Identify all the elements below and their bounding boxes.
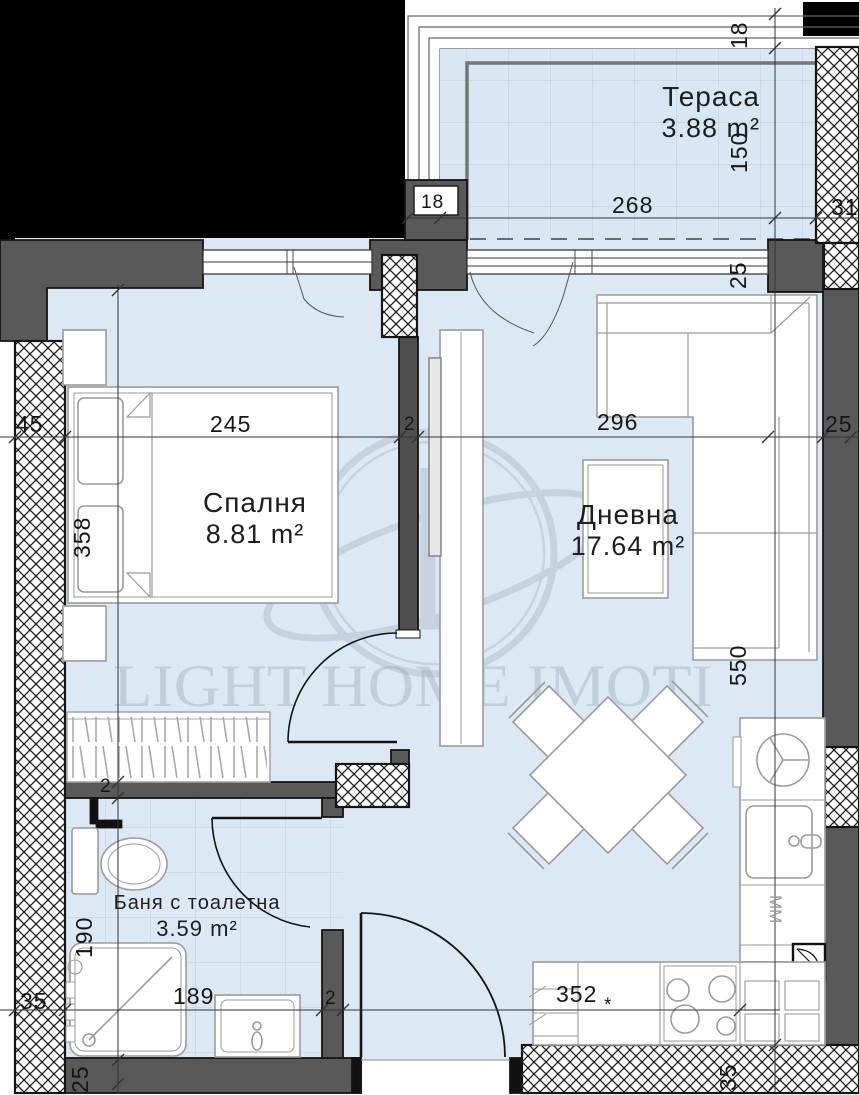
dim-bedroom-width: 245 [210, 411, 251, 438]
watermark-text: LIGHT HOME IMOTI [113, 653, 713, 719]
hatched-wall-left [15, 341, 65, 1093]
dim-partition-a: 2 [404, 414, 416, 436]
terrace-name: Тераса [590, 80, 760, 113]
dim-bathroom-depth: 190 [71, 917, 98, 958]
dim-terrace-width: 268 [612, 192, 653, 219]
dim-terrace-wall-top: 18 [726, 21, 753, 49]
dim-left-wall: 45 [16, 411, 44, 438]
nightstand [63, 330, 106, 385]
nightstand [63, 606, 106, 661]
floor-plan-page: LIGHT HOME IMOTI [0, 0, 859, 1095]
living-room-window [467, 250, 768, 274]
hatched-wall-bottom [522, 1045, 859, 1093]
dim-column-width: 18 [421, 192, 444, 214]
dim-kitchen-note: * [604, 995, 612, 1017]
hatched-column-hall [336, 764, 409, 807]
dim-bottom-wall-b: 25 [67, 1065, 94, 1093]
bedroom-name: Спалня [170, 486, 340, 519]
entrance-jamb-right [510, 1058, 522, 1093]
hatched-column-top [382, 255, 417, 337]
bathroom-sink [215, 995, 300, 1057]
room-label-bathroom: Баня с тоалетна 3.59 m² [92, 892, 302, 942]
bathroom-name: Баня с тоалетна [92, 892, 302, 916]
microwave-label: MM [766, 895, 785, 923]
dim-bottom-wall: 35 [715, 1063, 742, 1091]
living-area: 17.64 m² [543, 531, 713, 563]
dim-living-depth: 550 [725, 645, 752, 686]
pillow [78, 398, 123, 484]
wall-bottom-bath [65, 1058, 361, 1093]
room-label-living: Дневна 17.64 m² [543, 498, 713, 563]
dim-bathroom-width: 189 [173, 983, 214, 1010]
room-label-bedroom: Спалня 8.81 m² [170, 486, 340, 551]
tv [429, 358, 441, 556]
dim-terrace-depth: 150 [726, 132, 753, 173]
dim-kitchen-width: 352 [556, 981, 597, 1008]
dim-partition-b: 2 [100, 776, 112, 798]
dim-bath-wall: 35 [20, 988, 48, 1015]
wall-hall-step [391, 750, 409, 765]
dim-terrace-wall-right: 31 [831, 194, 859, 221]
hatched-wall-right-step [824, 243, 859, 289]
stove [664, 966, 736, 1041]
wall-right-upper [823, 289, 859, 747]
wardrobe [67, 712, 270, 782]
bedroom-window [203, 250, 372, 274]
kitchen-counter-right [733, 718, 825, 978]
wall-right-lower [823, 827, 859, 1045]
wall-bedroom-living-partition [399, 337, 418, 633]
dim-right-wall: 25 [825, 411, 853, 438]
entrance-jamb-left [352, 1058, 361, 1093]
bathroom-area: 3.59 m² [92, 916, 302, 942]
shower [66, 943, 186, 1056]
living-name: Дневна [543, 498, 713, 531]
dim-bedroom-depth: 358 [69, 517, 96, 558]
dim-window-corner: 25 [725, 261, 752, 289]
dim-living-width: 296 [597, 409, 638, 436]
hatched-wall-right-mid [825, 747, 859, 827]
wall-window-corner [768, 240, 823, 292]
entrance-opening [361, 1061, 510, 1095]
dim-partition-c: 2 [325, 988, 337, 1010]
wall-end-cap [396, 630, 420, 638]
bedroom-area: 8.81 m² [170, 519, 340, 551]
